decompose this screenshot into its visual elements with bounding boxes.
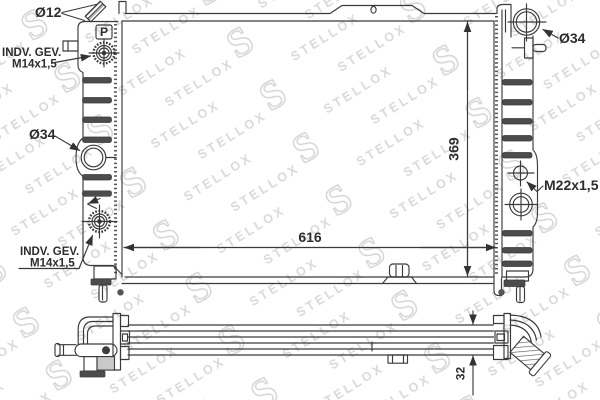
upper-fitting-label-2: M14x1,5 bbox=[12, 59, 57, 71]
radiator-drawing-canvas: S STELLOX STELLOX bbox=[0, 0, 600, 400]
top-pipe-label: Ø12 bbox=[35, 4, 62, 20]
right-fastener-dot bbox=[498, 289, 504, 295]
dim-width-label: 616 bbox=[298, 229, 322, 245]
left-hose-label: Ø34 bbox=[29, 126, 56, 142]
right-hose-label: Ø34 bbox=[559, 30, 586, 46]
upper-fitting-label-1: INDV. GEV. bbox=[2, 47, 61, 59]
dim-height-label: 369 bbox=[446, 137, 462, 161]
lower-fitting-label-2: M14x1,5 bbox=[30, 258, 75, 270]
left-fastener-dot bbox=[117, 289, 123, 295]
dim-depth-label: 32 bbox=[454, 367, 468, 381]
lower-fitting-label-1: INDV. GEV. bbox=[20, 246, 79, 258]
radiator-technical-drawing: S STELLOX STELLOX bbox=[0, 0, 600, 400]
right-fitting-label: M22x1,5 bbox=[544, 177, 599, 193]
cap-marking-label: P bbox=[100, 25, 108, 39]
